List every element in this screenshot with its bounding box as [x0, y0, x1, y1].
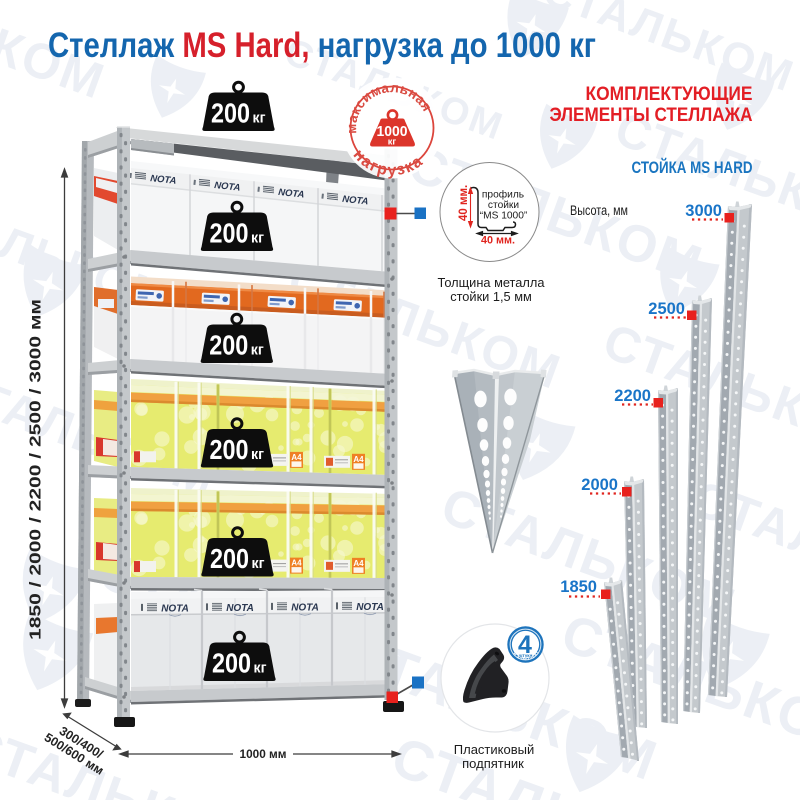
svg-text:профиль: профиль	[482, 189, 524, 201]
svg-text:200: 200	[209, 330, 248, 361]
svg-text:40 мм.: 40 мм.	[458, 185, 470, 221]
svg-text:NOTA: NOTA	[161, 604, 189, 615]
svg-text:200: 200	[210, 218, 249, 249]
svg-text:Высота, мм: Высота, мм	[570, 203, 628, 218]
svg-text:КОМПЛЕКТУЮЩИЕ: КОМПЛЕКТУЮЩИЕ	[586, 83, 753, 105]
svg-text:1850 / 2000 / 2200 / 2500 / 30: 1850 / 2000 / 2200 / 2500 / 3000 мм	[28, 299, 45, 640]
svg-text:NOTA: NOTA	[291, 603, 319, 614]
svg-text:кг: кг	[252, 556, 265, 572]
svg-text:Толщина металла: Толщина металла	[438, 275, 546, 290]
svg-text:200: 200	[211, 98, 250, 129]
svg-text:1000 мм: 1000 мм	[240, 747, 287, 761]
svg-text:ЭЛЕМЕНТЫ СТЕЛЛАЖА: ЭЛЕМЕНТЫ СТЕЛЛАЖА	[550, 104, 753, 126]
svg-text:2500: 2500	[648, 300, 685, 318]
svg-text:стойки 1,5 мм: стойки 1,5 мм	[450, 289, 532, 304]
svg-text:Пластиковый: Пластиковый	[454, 742, 534, 757]
svg-text:200: 200	[212, 648, 251, 679]
svg-text:“MS 1000”: “MS 1000”	[480, 211, 528, 222]
svg-text:кг: кг	[251, 231, 264, 247]
svg-text:40 мм.: 40 мм.	[481, 235, 515, 247]
svg-text:A4: A4	[353, 559, 364, 568]
svg-text:200: 200	[210, 543, 249, 574]
svg-text:кг: кг	[251, 447, 264, 463]
svg-text:A4: A4	[291, 453, 302, 462]
svg-text:Стеллаж MS Hard, нагрузка до 1: Стеллаж MS Hard, нагрузка до 1000 кг	[48, 26, 596, 65]
svg-text:A4: A4	[291, 559, 302, 568]
svg-text:кг: кг	[253, 111, 266, 127]
svg-text:кг: кг	[254, 661, 267, 677]
svg-text:A4: A4	[353, 455, 364, 464]
svg-text:3000: 3000	[685, 202, 722, 220]
svg-text:стойки: стойки	[488, 200, 519, 211]
svg-text:СТОЙКА MS HARD: СТОЙКА MS HARD	[632, 158, 753, 177]
svg-text:1850: 1850	[560, 578, 597, 596]
svg-text:200: 200	[210, 434, 249, 465]
svg-text:кг: кг	[251, 343, 264, 359]
svg-text:2000: 2000	[581, 476, 618, 494]
svg-text:NOTA: NOTA	[226, 603, 254, 614]
svg-text:кг: кг	[388, 137, 397, 147]
svg-text:NOTA: NOTA	[356, 602, 384, 613]
svg-text:подпятник: подпятник	[462, 756, 524, 771]
svg-text:2200: 2200	[614, 387, 651, 405]
